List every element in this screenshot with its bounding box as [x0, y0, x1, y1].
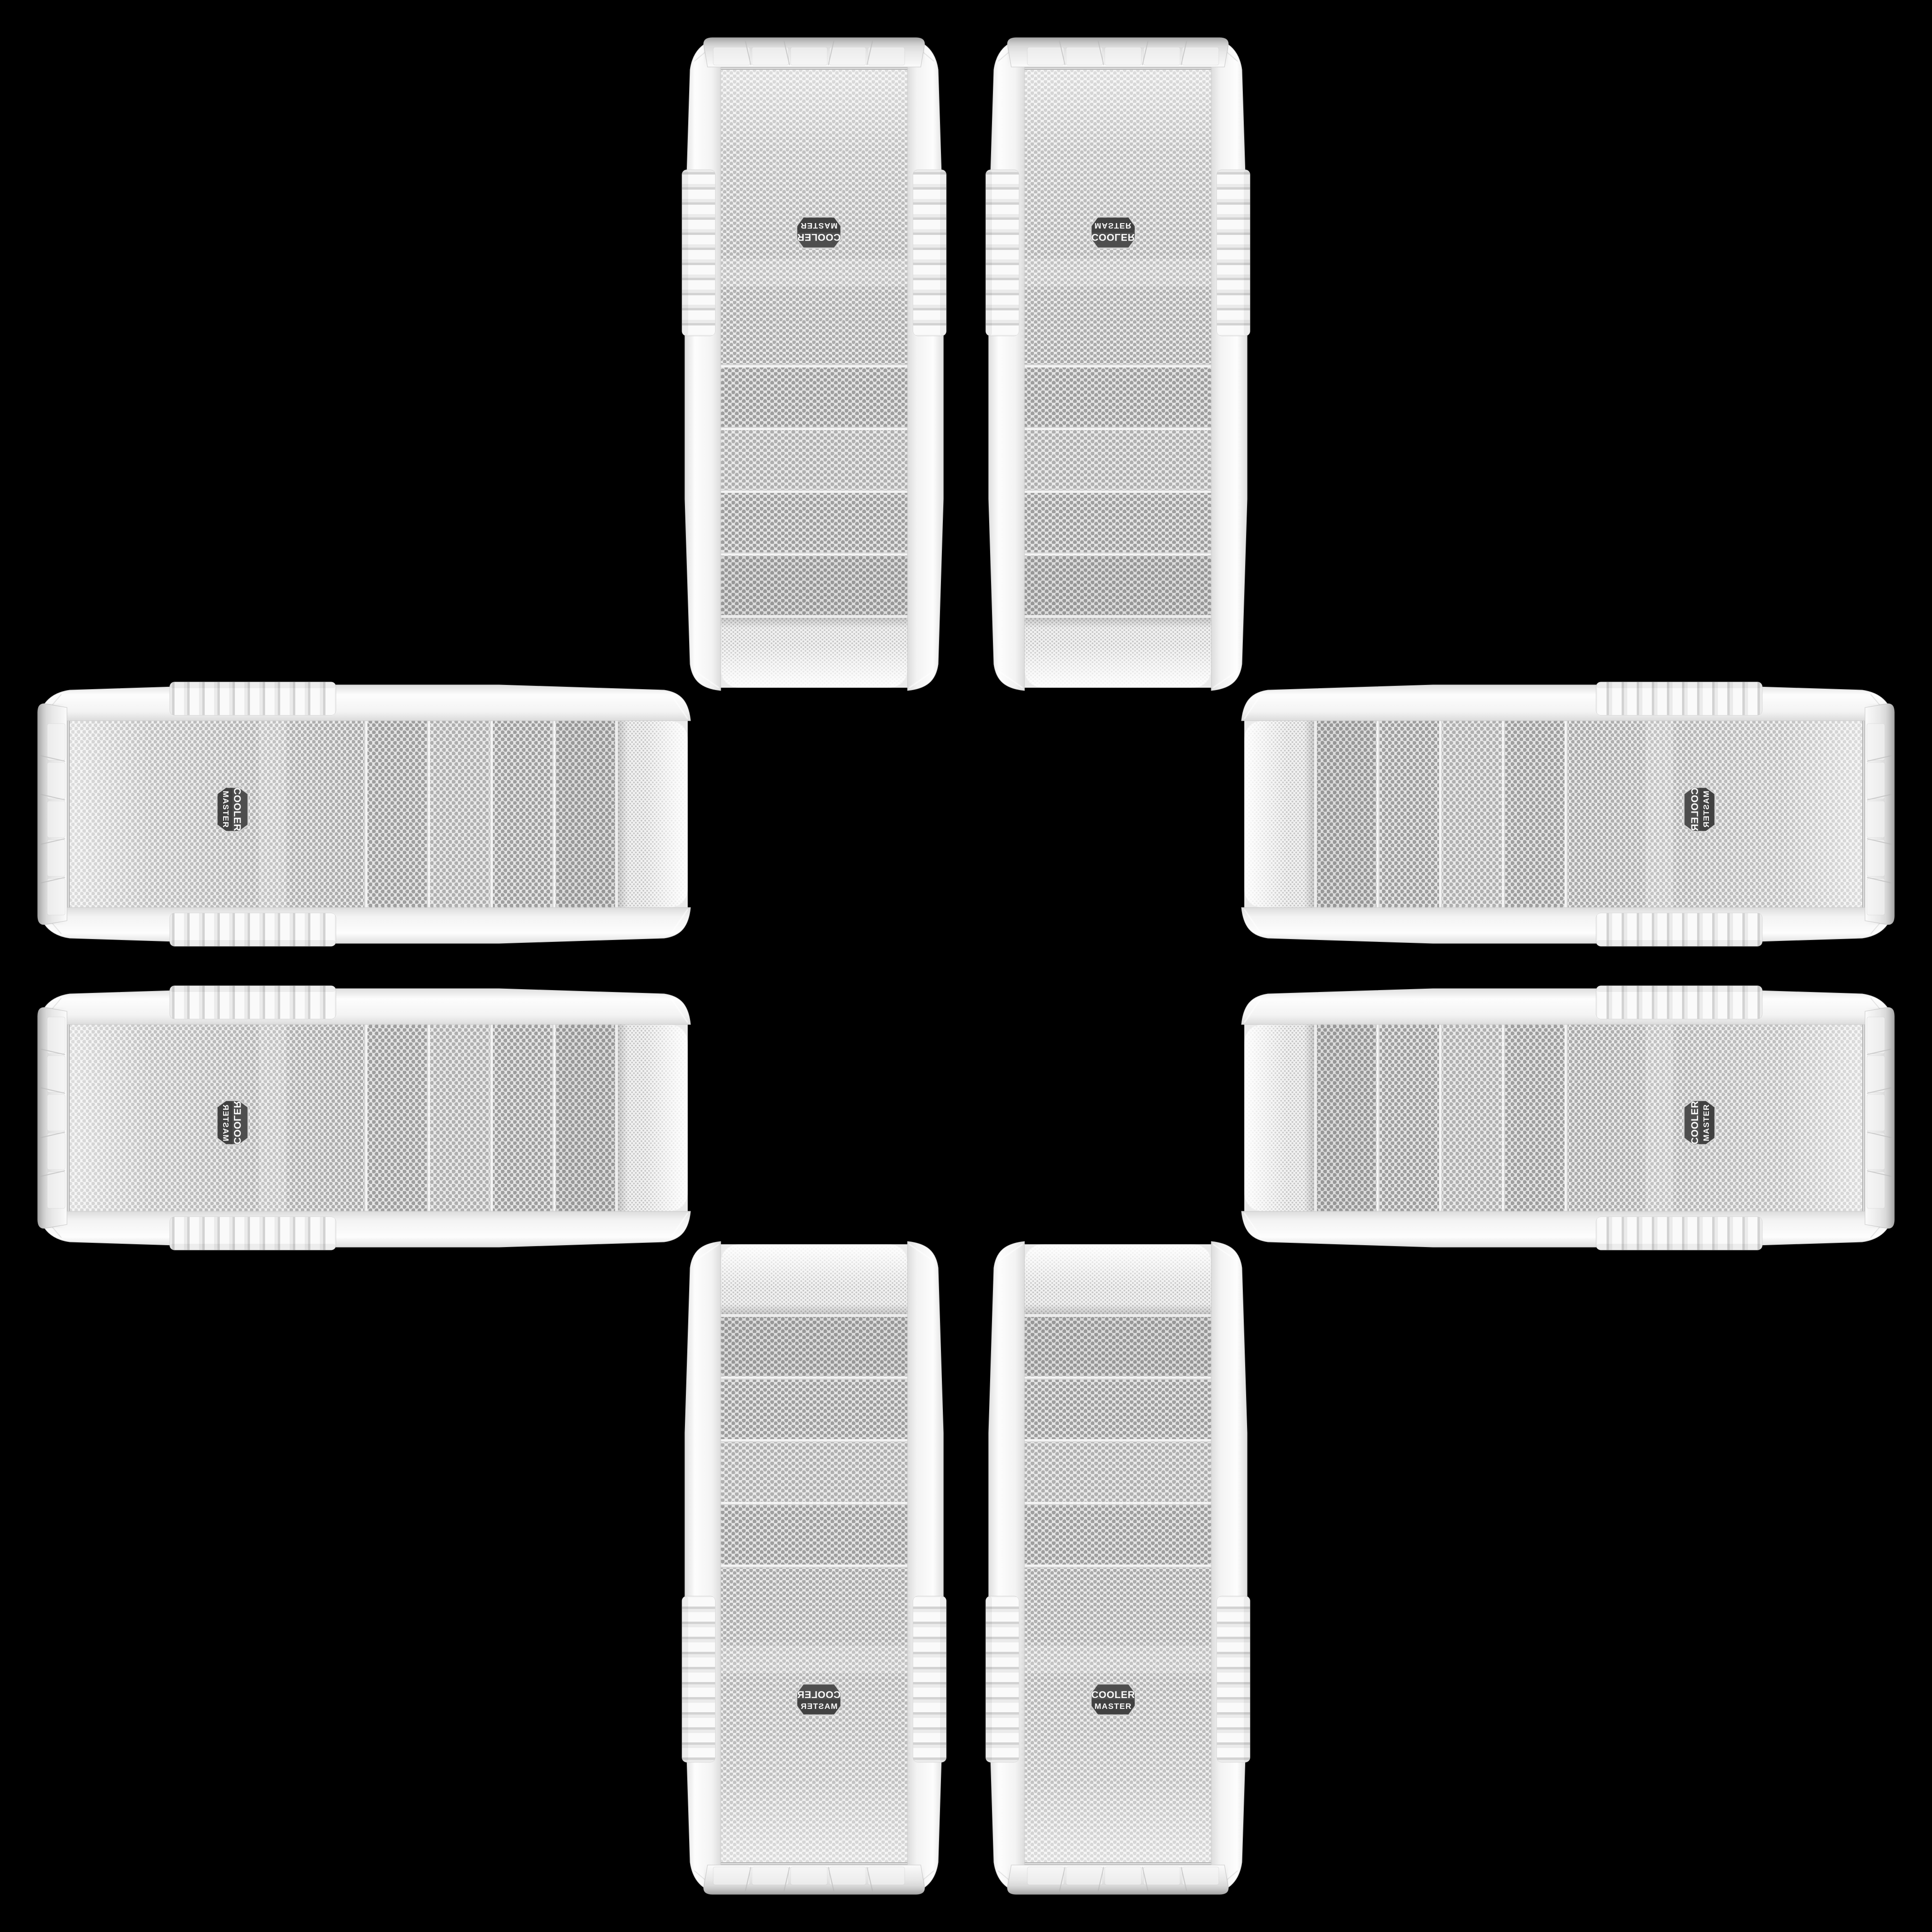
case-bottom-left	[677, 1235, 951, 1895]
cooler-master-case-image	[981, 37, 1255, 697]
case-bottom-right	[981, 1235, 1255, 1895]
case-top-left	[677, 37, 951, 697]
cooler-master-case-image	[677, 1235, 951, 1895]
case-right-bottom	[1428, 788, 1702, 1448]
cooler-master-case-image	[981, 1235, 1255, 1895]
case-top-right	[981, 37, 1255, 697]
cooler-master-case-image	[677, 37, 951, 697]
cooler-master-case-image	[1235, 981, 1895, 1255]
cooler-master-case-image	[37, 981, 697, 1255]
case-left-bottom	[230, 788, 504, 1448]
product-collage: COOLER MASTER	[0, 0, 1932, 1932]
